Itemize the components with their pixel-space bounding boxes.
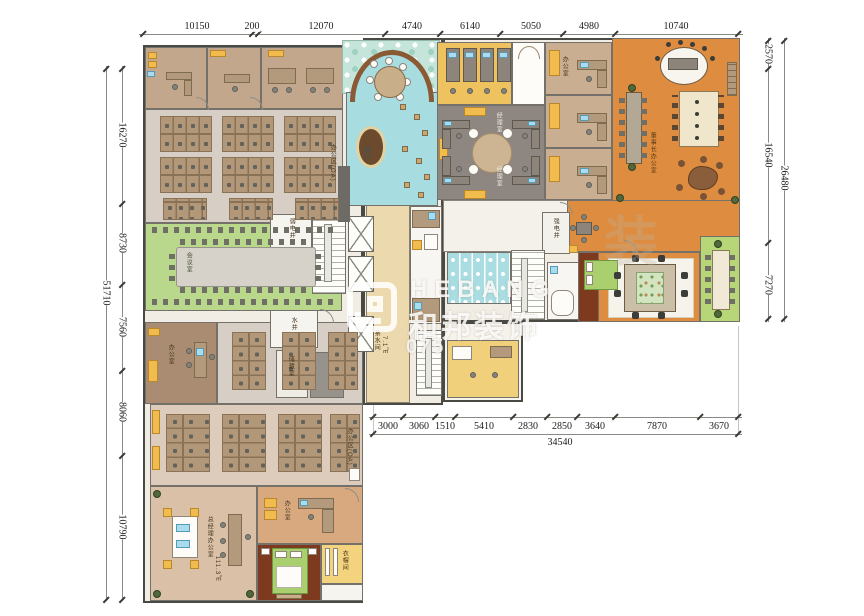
round-table-seat bbox=[385, 57, 393, 65]
cabinet bbox=[148, 52, 157, 59]
table-dot bbox=[695, 124, 699, 128]
conference-table-small bbox=[679, 91, 719, 147]
workstation-cluster bbox=[295, 198, 339, 220]
chair bbox=[286, 87, 292, 93]
desk-return bbox=[597, 176, 607, 194]
sofa-main bbox=[172, 516, 198, 558]
lounge-seat bbox=[700, 193, 707, 200]
armchair bbox=[190, 560, 199, 569]
round-table-seat bbox=[366, 76, 374, 84]
table-dot bbox=[695, 136, 699, 140]
wardrobe-rail bbox=[325, 548, 330, 576]
long-table bbox=[626, 92, 642, 164]
chair bbox=[456, 166, 462, 172]
desk-return bbox=[597, 123, 607, 141]
long-table-chairs bbox=[619, 96, 625, 158]
chair bbox=[484, 88, 490, 94]
chair bbox=[310, 87, 316, 93]
dim-label: 200 bbox=[244, 21, 261, 32]
sofa bbox=[549, 156, 560, 182]
dim-label: 3640 bbox=[584, 421, 606, 432]
workstation-cluster bbox=[160, 116, 212, 152]
chair bbox=[586, 182, 592, 188]
sofa bbox=[264, 510, 277, 520]
monitor bbox=[528, 178, 536, 183]
lounge-seat bbox=[716, 162, 723, 169]
desk-return bbox=[184, 80, 192, 96]
bath-sink bbox=[550, 266, 558, 274]
conference-chairs bbox=[169, 251, 175, 281]
conference-chairs bbox=[718, 95, 724, 141]
nightstand bbox=[308, 548, 317, 555]
conference-chairs bbox=[180, 239, 310, 245]
label-chairman: 董事长办公室 bbox=[648, 132, 655, 174]
chair bbox=[702, 46, 707, 51]
desk-console bbox=[668, 58, 698, 70]
petal-chair bbox=[468, 128, 479, 139]
sofa bbox=[549, 50, 560, 76]
label-lobby: 前厅 bbox=[362, 146, 369, 160]
workstation-cluster bbox=[328, 332, 358, 390]
chair bbox=[220, 538, 226, 544]
chair bbox=[710, 56, 715, 61]
monitor bbox=[147, 71, 155, 77]
dim-label: 6140 bbox=[459, 21, 481, 32]
chair bbox=[593, 225, 599, 231]
lounge-stool bbox=[416, 158, 422, 164]
chair bbox=[666, 42, 671, 47]
label-open-office-top: 办公区(OA) bbox=[328, 144, 335, 182]
electric-box bbox=[569, 245, 578, 253]
cabinet bbox=[148, 61, 157, 68]
stair-secondary bbox=[511, 250, 545, 320]
table-dot bbox=[695, 112, 699, 116]
dining-chair bbox=[614, 290, 621, 297]
chair bbox=[655, 56, 660, 61]
dim-label: 10150 bbox=[184, 21, 211, 32]
label-water-shaft: 水井 bbox=[289, 317, 296, 331]
locker bbox=[464, 107, 486, 116]
chair bbox=[220, 552, 226, 558]
desk bbox=[224, 74, 250, 83]
label-manager-2: 经理室 bbox=[494, 166, 501, 187]
hebang-logo bbox=[347, 282, 397, 332]
desk-return bbox=[531, 129, 540, 149]
desk-return bbox=[531, 156, 540, 176]
monitor bbox=[444, 121, 452, 126]
dim-label: 7870 bbox=[646, 421, 668, 432]
meeting-chairs bbox=[705, 254, 711, 304]
label-cloak: 衣帽间 bbox=[340, 550, 347, 571]
sofa bbox=[148, 360, 158, 382]
dim-label: 10740 bbox=[663, 21, 690, 32]
dim-tick bbox=[119, 596, 126, 603]
round-table bbox=[374, 66, 406, 98]
stair-rail bbox=[521, 258, 528, 312]
desk-return bbox=[597, 70, 607, 88]
pantry-sink bbox=[428, 212, 436, 220]
elevator-shaft bbox=[348, 216, 374, 252]
meeting-chairs bbox=[729, 254, 735, 304]
plant bbox=[714, 310, 722, 318]
room-small-bottom bbox=[321, 584, 363, 601]
reception-desk bbox=[356, 126, 386, 168]
conference-chairs bbox=[672, 95, 678, 141]
copier bbox=[349, 468, 360, 481]
hebang-logo-bar bbox=[367, 318, 381, 324]
petal-chair bbox=[502, 164, 513, 175]
dim-ext bbox=[738, 326, 739, 434]
chair bbox=[586, 129, 592, 135]
dim-label: 1510 bbox=[434, 421, 456, 432]
lounge-stool bbox=[402, 146, 408, 152]
lounge-seat bbox=[700, 156, 707, 163]
chair bbox=[220, 522, 226, 528]
nightstand bbox=[261, 548, 270, 555]
rug bbox=[276, 594, 302, 599]
label-gm-area: 111.3㎡ bbox=[213, 556, 220, 582]
desk-return bbox=[322, 509, 334, 533]
annex-table bbox=[452, 346, 472, 360]
chair bbox=[308, 514, 314, 520]
tea-table bbox=[576, 222, 592, 235]
dim-label: 10790 bbox=[117, 515, 128, 540]
cabinet bbox=[152, 410, 160, 434]
workstation-cluster bbox=[222, 157, 274, 193]
chair bbox=[172, 84, 178, 90]
cabinet bbox=[152, 446, 160, 470]
cabinet bbox=[148, 328, 160, 336]
pantry-sink bbox=[414, 302, 422, 310]
chair bbox=[467, 88, 473, 94]
dim-label-total: 34540 bbox=[547, 437, 574, 448]
meeting-table-long bbox=[712, 250, 730, 310]
plant bbox=[153, 590, 161, 598]
dim-label: 3670 bbox=[708, 421, 730, 432]
dim-label: 7560 bbox=[117, 317, 128, 337]
workstation-cluster bbox=[222, 116, 274, 152]
plant bbox=[628, 84, 636, 92]
dim-label: 2570 bbox=[763, 44, 774, 64]
workstation-cluster bbox=[232, 332, 266, 390]
bathtub bbox=[551, 290, 574, 316]
monitor bbox=[580, 62, 589, 68]
label-office-col: 办公室 bbox=[560, 56, 567, 77]
table-dot bbox=[695, 100, 699, 104]
lounge-seat bbox=[678, 160, 685, 167]
chair bbox=[522, 133, 528, 139]
monitor bbox=[499, 52, 508, 58]
dim-tick bbox=[103, 596, 110, 603]
dining-chair bbox=[632, 312, 639, 319]
cabinet bbox=[210, 50, 226, 57]
chair bbox=[209, 354, 215, 360]
dim-line-bottom-total bbox=[369, 434, 742, 435]
dim-label: 16270 bbox=[117, 123, 128, 148]
dim-label-total: 26480 bbox=[779, 166, 790, 191]
round-table-seat bbox=[370, 60, 378, 68]
label-weak-shaft: 弱电井 bbox=[287, 218, 294, 239]
bed-pillow bbox=[586, 262, 593, 272]
conference-chairs bbox=[315, 251, 321, 281]
dim-label: 3000 bbox=[377, 421, 399, 432]
room-toilets bbox=[447, 252, 511, 304]
label-pantry: 茶水间 bbox=[372, 330, 379, 351]
floor-plan-canvas: 10150 200 12070 4740 6140 5050 4980 1074… bbox=[0, 0, 864, 616]
dim-label: 7270 bbox=[763, 275, 774, 295]
chair bbox=[501, 88, 507, 94]
label-open-office-bottom: 办公区(OA) bbox=[345, 428, 352, 466]
sofa-cushion bbox=[176, 540, 190, 548]
bed-sheet bbox=[276, 566, 302, 588]
desk bbox=[166, 72, 192, 80]
cabinet bbox=[268, 50, 284, 57]
workstation-cluster bbox=[229, 198, 273, 220]
lounge-stool bbox=[418, 192, 424, 198]
bed-pillow bbox=[290, 551, 302, 558]
locker bbox=[464, 190, 486, 199]
lounge-stool bbox=[404, 182, 410, 188]
lounge-stool bbox=[422, 130, 428, 136]
monitor bbox=[300, 500, 308, 506]
monitor bbox=[580, 115, 589, 121]
chair bbox=[492, 372, 498, 378]
dim-label-total: 51710 bbox=[101, 281, 112, 306]
chair bbox=[570, 225, 576, 231]
dim-label: 2850 bbox=[551, 421, 573, 432]
chair bbox=[186, 348, 192, 354]
dining-chair bbox=[658, 255, 665, 262]
lounge-seat bbox=[718, 188, 725, 195]
workstation-cluster bbox=[160, 157, 212, 193]
chair bbox=[232, 86, 238, 92]
workstation-cluster bbox=[278, 414, 322, 472]
chair bbox=[581, 237, 587, 243]
dining-chair bbox=[681, 290, 688, 297]
petal-chair bbox=[502, 128, 513, 139]
monitor bbox=[482, 52, 491, 58]
chair bbox=[456, 133, 462, 139]
petal-chair bbox=[468, 164, 479, 175]
long-table-chairs bbox=[641, 96, 647, 158]
bookshelf bbox=[727, 62, 737, 96]
pantry-cabinet bbox=[412, 240, 422, 250]
desk-pair bbox=[268, 68, 296, 84]
hebang-logo-bar bbox=[355, 312, 361, 324]
conference-chairs bbox=[180, 287, 310, 293]
plant bbox=[246, 590, 254, 598]
label-pantry-area: 7.1㎡ bbox=[380, 336, 387, 354]
dining-centerpiece bbox=[636, 272, 664, 304]
chair bbox=[272, 87, 278, 93]
wardrobe-rail bbox=[333, 548, 338, 576]
dim-label: 8730 bbox=[117, 233, 128, 253]
label-storage: 储藏室 bbox=[286, 356, 293, 377]
label-office-suite: 办公室 bbox=[282, 500, 289, 521]
monitor bbox=[465, 52, 474, 58]
monitor bbox=[448, 52, 457, 58]
chair bbox=[245, 534, 251, 540]
lounge-stool bbox=[414, 114, 420, 120]
monitor bbox=[196, 348, 204, 356]
lounge-stool bbox=[400, 104, 406, 110]
gm-desk bbox=[228, 514, 242, 566]
lounge-stool bbox=[424, 174, 430, 180]
workstation-cluster bbox=[222, 414, 266, 472]
dim-line-top bbox=[139, 34, 743, 35]
dim-label: 16540 bbox=[763, 143, 774, 168]
annex-counter bbox=[490, 346, 512, 358]
dining-chair bbox=[632, 255, 639, 262]
plant bbox=[731, 196, 739, 204]
workstation-cluster bbox=[163, 198, 207, 220]
desk-return bbox=[442, 129, 451, 149]
dim-label: 8060 bbox=[117, 402, 128, 422]
monitor bbox=[444, 178, 452, 183]
dim-label: 3060 bbox=[408, 421, 430, 432]
sofa bbox=[549, 103, 560, 129]
pantry-fridge bbox=[424, 234, 438, 250]
hebang-logo-inner bbox=[367, 296, 383, 312]
sofa bbox=[264, 498, 277, 508]
plant bbox=[628, 163, 636, 171]
label-conference: 会议室 bbox=[184, 252, 191, 273]
desk-pair bbox=[306, 68, 334, 84]
bed-pillow bbox=[275, 551, 287, 558]
dim-line-bottom bbox=[369, 417, 742, 418]
armchair bbox=[163, 508, 172, 517]
label-manager-1: 经理室 bbox=[494, 112, 501, 133]
armchair bbox=[190, 508, 199, 517]
armchair bbox=[163, 560, 172, 569]
monitor bbox=[580, 168, 589, 174]
dim-line-left-total bbox=[106, 66, 107, 601]
label-strong-shaft: 强电井 bbox=[551, 218, 558, 239]
plant bbox=[714, 240, 722, 248]
chair bbox=[470, 372, 476, 378]
chair bbox=[581, 214, 587, 220]
dim-label: 5410 bbox=[473, 421, 495, 432]
wall-chairs bbox=[152, 299, 336, 305]
dining-chair bbox=[658, 312, 665, 319]
lounge-seat bbox=[676, 184, 683, 191]
sofa-cushion bbox=[176, 524, 190, 532]
dim-label: 5050 bbox=[520, 21, 542, 32]
chair bbox=[324, 87, 330, 93]
dim-label: 12070 bbox=[308, 21, 335, 32]
dining-chair bbox=[681, 272, 688, 279]
dim-label: 4740 bbox=[401, 21, 423, 32]
label-gm-office: 总经理办公室 bbox=[205, 516, 212, 558]
monitor bbox=[528, 121, 536, 126]
dining-chair bbox=[614, 272, 621, 279]
wall-chairs bbox=[152, 227, 336, 233]
dim-label: 2830 bbox=[517, 421, 539, 432]
chair bbox=[522, 166, 528, 172]
workstation-cluster bbox=[166, 414, 210, 472]
chair bbox=[450, 88, 456, 94]
desk-return bbox=[442, 156, 451, 176]
dim-label: 4980 bbox=[578, 21, 600, 32]
chair bbox=[690, 42, 695, 47]
conference-table bbox=[176, 247, 316, 287]
chair bbox=[678, 40, 683, 45]
plant bbox=[616, 194, 624, 202]
feature-wall bbox=[338, 166, 350, 222]
chair bbox=[186, 362, 192, 368]
plant bbox=[153, 490, 161, 498]
stair-rail bbox=[425, 338, 432, 388]
bed-pillow bbox=[586, 275, 593, 285]
chair bbox=[586, 76, 592, 82]
label-office-mid: 办公室 bbox=[166, 344, 173, 365]
